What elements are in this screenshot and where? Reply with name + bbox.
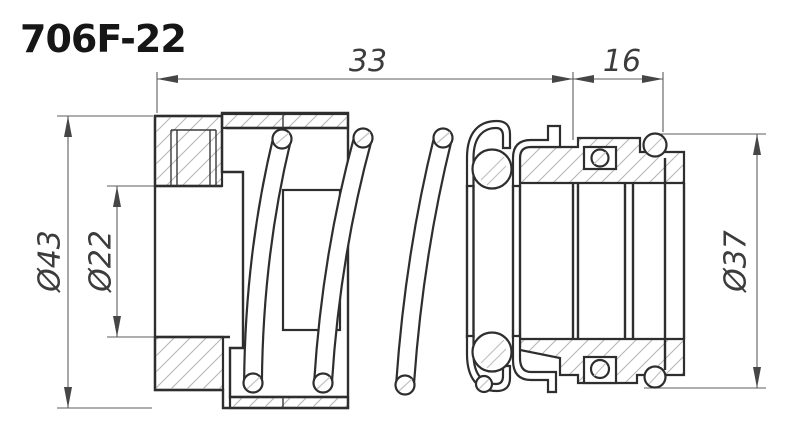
dim-label-od43: Ø43 [33,230,68,294]
technical-drawing-canvas: 706F-22 33 16 Ø43 Ø22 Ø37 [0,0,800,437]
seal-wall-lines [467,185,474,338]
dim-label-od22: Ø22 [84,230,119,294]
hatch-lower-block [155,337,223,390]
sleeve-wall-lines-2 [625,183,633,339]
arrowhead [552,75,573,83]
sleeve-wall-lines-1 [573,183,578,339]
arrowhead [573,75,594,83]
arrowhead [642,75,663,83]
left-view-cup-section [155,113,373,408]
part-number-title: 706F-22 [20,17,186,61]
dim-label-od37: Ø37 [719,230,754,294]
spring-washer-side-view [396,129,453,395]
arrowhead [64,116,72,137]
arrowhead [753,134,761,155]
dim-label-16: 16 [603,44,641,79]
hatch-bottom-plate [230,397,348,408]
arrowhead [113,186,121,207]
arrowhead [64,387,72,408]
arrowhead [157,75,178,83]
inner-race-wall-lines [513,185,520,338]
arrowhead [753,367,761,388]
right-view-bearing-section [467,121,684,392]
technical-drawing-page: 706F-22 33 16 Ø43 Ø22 Ø37 [0,0,800,437]
dim-label-33: 33 [349,44,387,79]
arrowhead [113,316,121,337]
hatch-top-band [222,114,348,128]
hatch-flange-block [155,116,222,186]
